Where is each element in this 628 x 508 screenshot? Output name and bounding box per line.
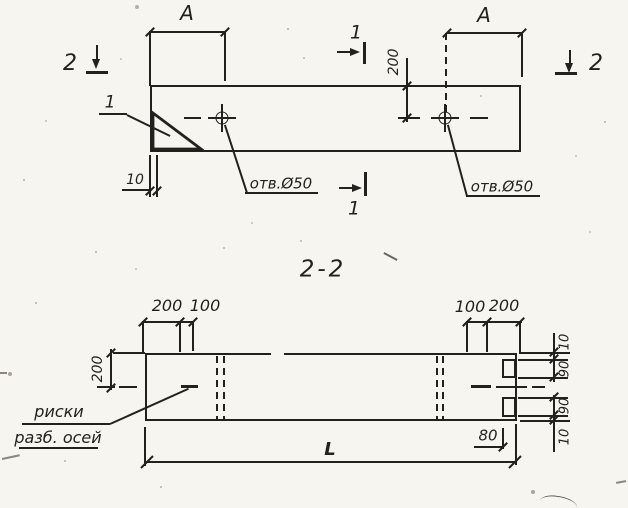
- extension-line: [520, 352, 570, 354]
- dim-left-200-label: 200: [91, 356, 105, 383]
- axes-label-line1: риски: [34, 404, 83, 420]
- dim-A-right-line: [447, 32, 522, 34]
- dim-10-underline: [122, 189, 149, 191]
- dim-10-label: 10: [126, 173, 144, 187]
- axes-label-line2: разб. осей: [14, 430, 101, 446]
- stray-mark: [2, 454, 20, 460]
- dim-100-right-label: 100: [455, 299, 486, 315]
- dim-right-10-top-label: 10: [559, 334, 572, 351]
- section-marker-2-left-label: 2: [63, 53, 77, 75]
- dim-A-left-line: [150, 31, 225, 33]
- center-line: [532, 386, 545, 388]
- extension-line: [521, 33, 523, 77]
- section-marker-bar: [86, 71, 108, 74]
- section-marker-1-top-label: 1: [350, 24, 362, 43]
- section-arrow: [92, 59, 100, 69]
- dim-80-label: 80: [478, 429, 497, 444]
- dim-100-left-label: 100: [190, 298, 221, 314]
- hole-left-axis-dash: [184, 117, 201, 119]
- stray-mark: [0, 372, 7, 374]
- layout-axis-mark-left: [181, 385, 198, 389]
- section-marker-1-bottom-label: 1: [348, 200, 360, 219]
- dimension-line: [466, 321, 522, 323]
- dim-200-left-label: 200: [152, 298, 183, 314]
- extension-line: [149, 31, 151, 86]
- section-marker-bar: [363, 42, 366, 64]
- dim-L-line: [145, 461, 517, 463]
- dim-200-label: 200: [387, 49, 401, 76]
- extension-line: [224, 31, 226, 81]
- section-marker-bar: [555, 72, 577, 75]
- extension-line-dashed: [445, 33, 447, 113]
- center-line: [119, 386, 137, 388]
- extension-line: [520, 420, 570, 422]
- dimension-line: [142, 321, 194, 323]
- center-line: [496, 386, 527, 388]
- layout-axis-mark-right: [471, 385, 491, 388]
- dim-right-90-bottom-label: 90: [559, 398, 572, 415]
- hidden-line: [436, 356, 438, 419]
- callout-underline: [19, 447, 98, 449]
- stray-mark: [384, 252, 398, 260]
- extension-line: [486, 322, 488, 352]
- hole-right-axis-dash-right: [470, 117, 488, 119]
- dim-200-right-label: 200: [489, 298, 520, 314]
- end-notch-top: [502, 359, 516, 378]
- section-beam-outline: [145, 353, 517, 421]
- hole-label-right: отв.Ø50: [471, 180, 533, 195]
- extension-line: [179, 322, 181, 352]
- end-notch-bottom: [502, 397, 516, 417]
- hidden-line: [223, 356, 225, 419]
- hole-label-left: отв.Ø50: [250, 177, 312, 192]
- drawing-sheet: A A 200 1 1 2 2: [0, 0, 628, 508]
- hole-left: [216, 112, 229, 125]
- hidden-line: [216, 356, 218, 419]
- stray-mark: [616, 480, 626, 483]
- dim-right-90-top-label: 90: [559, 361, 572, 378]
- section-title: 2-2: [300, 259, 347, 282]
- dim-200-line: [406, 58, 408, 122]
- dim-A-left-label: A: [180, 3, 194, 23]
- extension-line: [466, 322, 468, 352]
- extension-line: [519, 322, 521, 354]
- callout-underline: [99, 113, 127, 115]
- extension-line: [113, 352, 145, 354]
- paper-speckles: [0, 0, 2, 2]
- section-marker-bar: [364, 172, 367, 196]
- extension-line: [192, 322, 194, 351]
- callout-underline: [22, 423, 110, 425]
- dim-right-10-bottom-label: 10: [559, 429, 572, 446]
- dim-A-right-label: A: [477, 5, 491, 25]
- dim-length-label: L: [324, 441, 335, 459]
- detail-callout-1-label: 1: [105, 95, 116, 112]
- hole-right: [439, 112, 452, 125]
- hidden-line: [442, 356, 444, 419]
- section-arrow: [352, 184, 362, 192]
- edge-break-gap: [271, 351, 284, 357]
- stray-mark: [540, 494, 579, 508]
- section-marker-2-right-label: 2: [589, 53, 603, 75]
- extension-line: [518, 415, 568, 417]
- plan-beam-outline: [150, 85, 521, 152]
- section-arrow: [350, 48, 360, 56]
- extension-line: [142, 322, 144, 352]
- dimension-line: [553, 395, 555, 452]
